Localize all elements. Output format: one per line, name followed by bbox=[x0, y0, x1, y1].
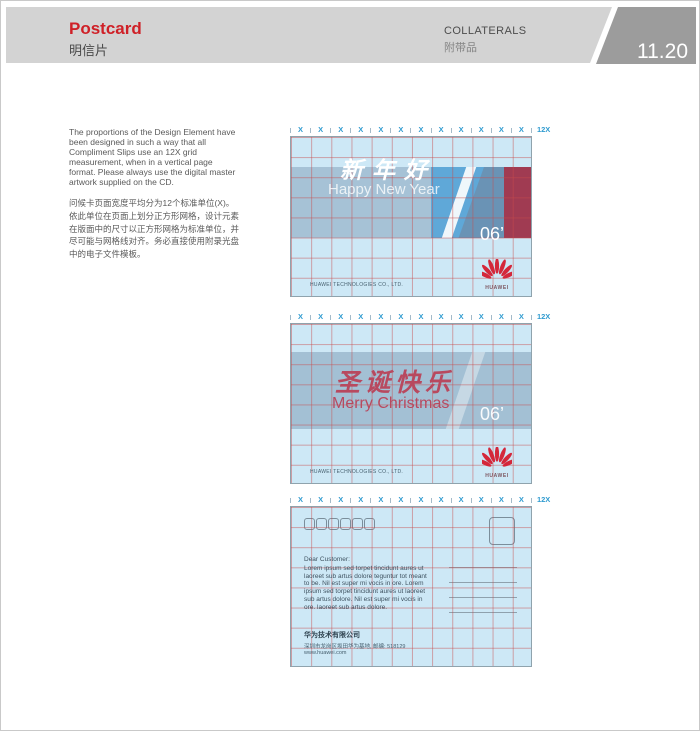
ruler-unit-label: X bbox=[452, 495, 471, 505]
postcard-christmas: 圣诞快乐 Merry Christmas 06’ HUAWEI HUAWEI T… bbox=[290, 323, 532, 484]
ruler-unit-label: X bbox=[311, 125, 330, 135]
ruler-unit-label: X bbox=[391, 312, 410, 322]
postal-code-box bbox=[364, 518, 375, 530]
ruler-unit-label: X bbox=[411, 125, 430, 135]
company-line: HUAWEI TECHNOLOGIES CO., LTD. bbox=[310, 282, 403, 288]
ruler-unit-label: X bbox=[351, 125, 370, 135]
company-line: HUAWEI TECHNOLOGIES CO., LTD. bbox=[310, 469, 403, 475]
page-title-en: Postcard bbox=[69, 19, 142, 39]
manual-page: 11.20 Postcard 明信片 COLLATERALS 附带品 The p… bbox=[0, 0, 700, 731]
huawei-logo-text: HUAWEI bbox=[480, 285, 514, 291]
ruler-total-label: 12X bbox=[537, 125, 550, 135]
page-title-zh: 明信片 bbox=[69, 40, 108, 59]
letter-salutation: Dear Customer: bbox=[304, 556, 428, 564]
greeting-en: Happy New Year bbox=[328, 181, 440, 198]
sender-website: www.huawei.com bbox=[304, 650, 405, 656]
huawei-flower-icon bbox=[482, 259, 512, 281]
section-label-en: COLLATERALS bbox=[444, 25, 526, 37]
ruler-unit-label: X bbox=[291, 312, 310, 322]
postal-code-box bbox=[316, 518, 327, 530]
greeting-zh: 新年好 bbox=[340, 151, 436, 185]
ruler-unit-label: X bbox=[411, 312, 430, 322]
grid-ruler: XXXXXXXXXXXX12X bbox=[290, 125, 590, 135]
postal-code-box bbox=[304, 518, 315, 530]
ruler-unit-label: X bbox=[472, 495, 491, 505]
grid-ruler: XXXXXXXXXXXX12X bbox=[290, 312, 590, 322]
grid-ruler: XXXXXXXXXXXX12X bbox=[290, 495, 590, 505]
ruler-unit-label: X bbox=[311, 312, 330, 322]
sender-company: 华为技术有限公司 bbox=[304, 630, 405, 640]
ruler-unit-label: X bbox=[512, 125, 531, 135]
ruler-unit-label: X bbox=[452, 312, 471, 322]
band-maroon-block bbox=[504, 167, 531, 238]
address-line bbox=[449, 568, 517, 583]
postcard-back: Dear Customer: Lorem ipsum sed torpet ti… bbox=[290, 506, 532, 667]
greeting-en: Merry Christmas bbox=[332, 395, 449, 413]
ruler-unit-label: X bbox=[512, 312, 531, 322]
page-number: 11.20 bbox=[637, 40, 688, 64]
ruler-tick bbox=[531, 315, 532, 320]
ruler-unit-label: X bbox=[331, 312, 350, 322]
ruler-unit-label: X bbox=[391, 495, 410, 505]
huawei-logo-text: HUAWEI bbox=[480, 473, 514, 479]
postal-code-box bbox=[340, 518, 351, 530]
address-line bbox=[449, 583, 517, 598]
ruler-unit-label: X bbox=[492, 312, 511, 322]
ruler-unit-label: X bbox=[331, 125, 350, 135]
ruler-unit-label: X bbox=[371, 125, 390, 135]
intro-paragraph-zh: 问候卡页面宽度平均分为12个标准单位(X)。依此单位在页面上划分正方形网格，设计… bbox=[69, 197, 241, 261]
huawei-flower-icon bbox=[482, 447, 512, 469]
stamp-box bbox=[489, 517, 515, 545]
huawei-logo: HUAWEI bbox=[480, 447, 514, 479]
ruler-unit-label: X bbox=[371, 495, 390, 505]
ruler-unit-label: X bbox=[391, 125, 410, 135]
ruler-unit-label: X bbox=[291, 495, 310, 505]
postal-code-box bbox=[328, 518, 339, 530]
ruler-unit-label: X bbox=[411, 495, 430, 505]
postal-code-boxes bbox=[304, 518, 375, 530]
ruler-unit-label: X bbox=[452, 125, 471, 135]
intro-paragraph-en: The proportions of the Design Element ha… bbox=[69, 127, 241, 187]
ruler-tick bbox=[531, 128, 532, 133]
huawei-logo: HUAWEI bbox=[480, 259, 514, 291]
letter-body: Lorem ipsum sed torpet tincidunt aures u… bbox=[304, 565, 427, 611]
ruler-unit-label: X bbox=[472, 125, 491, 135]
section-label-zh: 附带品 bbox=[444, 39, 477, 55]
ruler-unit-label: X bbox=[432, 495, 451, 505]
ruler-unit-label: X bbox=[472, 312, 491, 322]
ruler-total-label: 12X bbox=[537, 312, 550, 322]
ruler-tick bbox=[531, 498, 532, 503]
ruler-unit-label: X bbox=[351, 312, 370, 322]
postal-code-box bbox=[352, 518, 363, 530]
address-lines bbox=[449, 553, 517, 613]
postcard-new-year: 新年好 Happy New Year 06’ HUAWEI HUAWEI TEC… bbox=[290, 136, 532, 297]
ruler-unit-label: X bbox=[432, 125, 451, 135]
address-line bbox=[449, 598, 517, 613]
ruler-unit-label: X bbox=[351, 495, 370, 505]
ruler-unit-label: X bbox=[311, 495, 330, 505]
page-number-block: 11.20 bbox=[596, 7, 696, 64]
ruler-unit-label: X bbox=[492, 495, 511, 505]
greeting-zh: 圣诞快乐 bbox=[335, 363, 455, 399]
ruler-unit-label: X bbox=[432, 312, 451, 322]
ruler-unit-label: X bbox=[291, 125, 310, 135]
address-line bbox=[449, 553, 517, 568]
ruler-unit-label: X bbox=[492, 125, 511, 135]
ruler-total-label: 12X bbox=[537, 495, 550, 505]
ruler-unit-label: X bbox=[512, 495, 531, 505]
sender-address: 深圳市龙岗区坂田华为基地, 邮编: 518129 bbox=[304, 642, 405, 650]
letter-text: Dear Customer: Lorem ipsum sed torpet ti… bbox=[304, 556, 428, 612]
ruler-unit-label: X bbox=[371, 312, 390, 322]
sender-block: 华为技术有限公司 深圳市龙岗区坂田华为基地, 邮编: 518129 www.hu… bbox=[304, 630, 405, 656]
ruler-unit-label: X bbox=[331, 495, 350, 505]
